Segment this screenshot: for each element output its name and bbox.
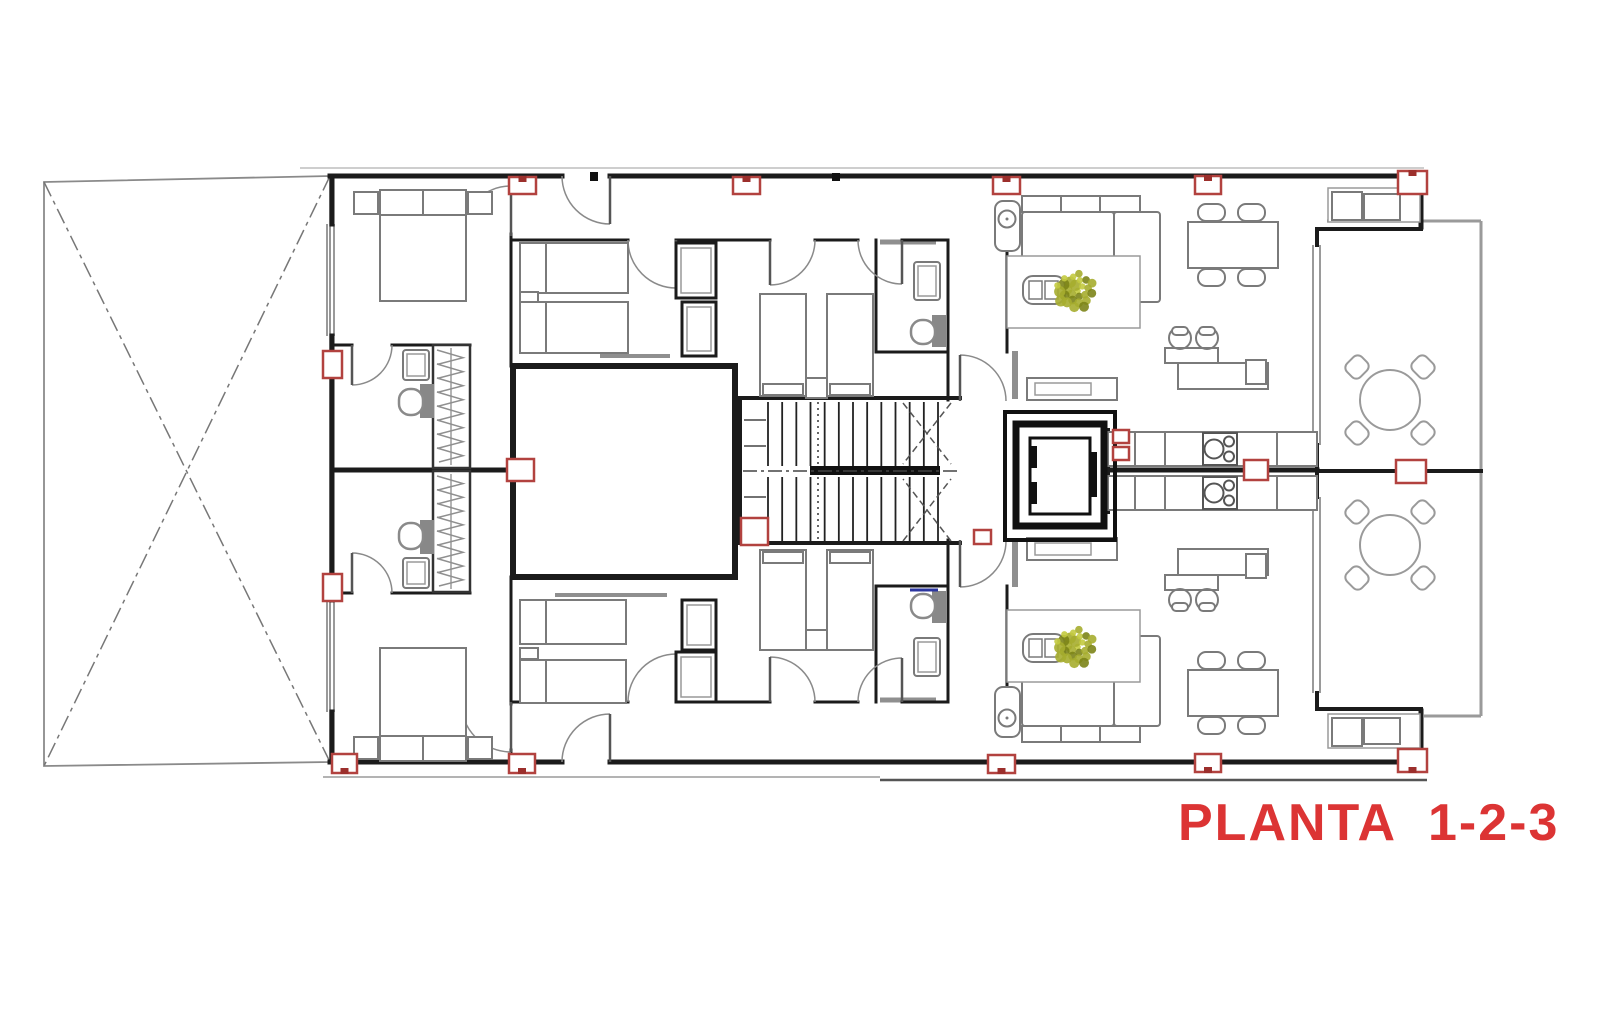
shape xyxy=(407,562,425,584)
column-box xyxy=(1244,460,1268,480)
shape xyxy=(911,594,935,618)
shape xyxy=(520,600,626,644)
shape xyxy=(687,307,711,351)
door xyxy=(858,240,902,284)
column-box xyxy=(323,351,342,378)
column-marker xyxy=(733,176,760,194)
closet xyxy=(682,302,716,356)
shape xyxy=(763,552,803,563)
column-notch xyxy=(1204,175,1212,181)
shape xyxy=(1364,194,1400,220)
twin-beds xyxy=(520,600,626,703)
terrace-chair xyxy=(1409,498,1437,526)
shape xyxy=(830,552,870,563)
elevator-frame xyxy=(1030,438,1090,514)
shape xyxy=(380,215,466,301)
shape xyxy=(1198,717,1225,734)
shape xyxy=(918,266,936,296)
leaf xyxy=(1061,275,1067,281)
shape xyxy=(760,550,806,650)
terrace-table xyxy=(1343,498,1437,592)
shape xyxy=(806,378,827,398)
leaf xyxy=(1055,651,1066,662)
elevator xyxy=(1005,412,1115,540)
shape xyxy=(1165,348,1218,363)
sideboard xyxy=(1328,714,1420,748)
wardrobe xyxy=(433,345,470,468)
closet xyxy=(676,243,716,298)
shape xyxy=(380,648,466,736)
column-marker xyxy=(1398,170,1427,194)
double-bed xyxy=(354,648,492,761)
door-arc xyxy=(628,654,676,702)
door-arc xyxy=(858,658,902,702)
shape xyxy=(1029,639,1042,657)
door-arc xyxy=(960,540,1006,587)
leaf xyxy=(1088,635,1097,644)
shape xyxy=(1165,575,1218,590)
door xyxy=(628,654,676,702)
floor-plan-sheet: PLANTA 1-2-3 xyxy=(0,0,1600,1024)
closet xyxy=(676,652,716,702)
wardrobe xyxy=(433,471,470,592)
shape xyxy=(1198,269,1225,286)
door xyxy=(960,540,1006,587)
column-marker xyxy=(741,518,768,545)
shape xyxy=(1246,554,1266,578)
column-notch xyxy=(998,768,1006,774)
shape xyxy=(1172,327,1188,335)
door xyxy=(352,345,392,385)
shape xyxy=(1029,281,1042,299)
column-box xyxy=(507,459,534,481)
shape xyxy=(1199,603,1215,611)
column-box xyxy=(1113,430,1129,443)
shape xyxy=(995,201,1020,251)
circle xyxy=(1006,218,1009,221)
column-notch xyxy=(1409,767,1417,773)
elevator-door-bar xyxy=(1030,482,1037,504)
shape xyxy=(354,192,378,214)
shape xyxy=(1364,718,1400,744)
bathroom-fixtures xyxy=(911,262,945,346)
shape xyxy=(1172,603,1188,611)
shape xyxy=(827,294,873,396)
terrace-chair xyxy=(1409,564,1437,592)
door xyxy=(858,658,902,702)
shape xyxy=(687,605,711,645)
twin-beds xyxy=(760,550,873,650)
door xyxy=(960,355,1006,401)
shape xyxy=(1199,327,1215,335)
door-arc xyxy=(562,176,610,224)
column-box xyxy=(1113,447,1129,460)
door xyxy=(628,240,676,288)
shape xyxy=(520,660,626,703)
shape xyxy=(681,657,711,697)
column-notch xyxy=(341,768,349,774)
column-marker xyxy=(974,530,991,544)
door-stop xyxy=(832,173,840,181)
door-stop xyxy=(590,172,598,181)
column-notch xyxy=(1409,170,1417,176)
shape xyxy=(399,389,423,415)
column-marker xyxy=(988,755,1015,774)
leaf xyxy=(1077,277,1083,283)
shape xyxy=(468,192,492,214)
leaf xyxy=(1079,658,1089,668)
island-desk xyxy=(1165,327,1268,389)
leaf xyxy=(1087,289,1096,298)
terrace-chair xyxy=(1343,419,1371,447)
shape xyxy=(760,294,806,396)
shape xyxy=(1332,192,1362,220)
leaf xyxy=(1061,631,1067,637)
leaf xyxy=(1055,295,1066,306)
door-arc xyxy=(352,345,392,385)
shape xyxy=(1238,717,1265,734)
column-marker xyxy=(1195,175,1221,194)
door-arc xyxy=(770,657,815,702)
shape xyxy=(918,642,936,672)
leaf xyxy=(1079,302,1089,312)
dining-table xyxy=(1188,652,1278,734)
column-notch xyxy=(519,176,527,182)
shape xyxy=(520,292,538,302)
circle xyxy=(1360,515,1420,575)
kitchen-counter xyxy=(1108,432,1317,466)
column-marker xyxy=(507,459,534,481)
shape xyxy=(399,523,423,549)
terrace-chair xyxy=(1409,353,1437,381)
column-notch xyxy=(518,768,526,774)
door-arc xyxy=(352,553,392,593)
shape xyxy=(1022,212,1114,260)
staircase xyxy=(743,402,957,541)
door xyxy=(562,714,610,762)
column-box xyxy=(1396,460,1426,483)
shape xyxy=(1198,204,1225,221)
shape xyxy=(468,737,492,759)
shape xyxy=(1246,360,1266,384)
column-box xyxy=(741,518,768,545)
door xyxy=(562,176,610,224)
leaf xyxy=(1077,633,1083,639)
terrace-chair xyxy=(1343,353,1371,381)
column-notch xyxy=(1003,176,1011,182)
door xyxy=(352,553,392,593)
column-box xyxy=(323,574,342,601)
column-marker xyxy=(1113,430,1129,443)
column-marker xyxy=(1113,447,1129,460)
floor-plan-drawing xyxy=(0,0,1600,1024)
shape xyxy=(1238,652,1265,669)
leaf xyxy=(1054,638,1060,644)
leaf xyxy=(1069,302,1079,312)
door-arc xyxy=(770,240,815,285)
shape xyxy=(1035,543,1091,555)
shape xyxy=(1238,269,1265,286)
terrace-chair xyxy=(1343,498,1371,526)
double-bed xyxy=(354,190,492,301)
column-notch xyxy=(1204,767,1212,773)
column-marker xyxy=(323,574,342,601)
shape xyxy=(1022,196,1140,212)
column-marker xyxy=(509,176,536,194)
door-arc xyxy=(858,240,902,284)
bathroom-fixtures xyxy=(399,350,433,417)
shape xyxy=(1188,222,1278,268)
floor-lamp xyxy=(995,687,1020,737)
terrace-chair xyxy=(1343,564,1371,592)
shape xyxy=(1332,718,1362,746)
terrace-chair xyxy=(1409,419,1437,447)
twin-beds xyxy=(760,294,873,398)
shape xyxy=(1035,383,1091,395)
shape xyxy=(520,243,628,293)
door xyxy=(770,657,815,702)
terrace-table xyxy=(1343,353,1437,447)
shape xyxy=(827,550,873,650)
closet xyxy=(682,600,716,650)
door xyxy=(770,240,815,285)
shape xyxy=(1022,726,1140,742)
leaf xyxy=(1075,270,1083,278)
column-notch xyxy=(743,176,751,182)
bathroom-fixtures xyxy=(910,590,945,676)
column-marker xyxy=(1244,460,1268,480)
shape xyxy=(1198,652,1225,669)
dining-table xyxy=(1188,204,1278,286)
patio-diagonal xyxy=(44,182,330,762)
shape xyxy=(520,302,628,353)
door-arc xyxy=(628,240,676,288)
shape xyxy=(1022,678,1114,726)
leaf xyxy=(1069,658,1079,668)
column-marker xyxy=(323,351,342,378)
kitchen-counter xyxy=(1108,476,1317,510)
shape xyxy=(681,248,711,293)
shape xyxy=(911,320,935,344)
column-marker xyxy=(509,754,535,774)
column-box xyxy=(974,530,991,544)
elevator-door-bar xyxy=(1091,452,1097,497)
shape xyxy=(520,648,538,659)
column-marker xyxy=(1195,754,1221,773)
floor-lamp xyxy=(995,201,1020,251)
door-arc xyxy=(562,714,610,762)
column-marker xyxy=(332,754,357,774)
shape xyxy=(995,687,1020,737)
plan-title: PLANTA 1-2-3 xyxy=(1178,797,1559,849)
patio-area xyxy=(44,176,330,766)
circle xyxy=(1006,717,1009,720)
column-marker xyxy=(993,176,1020,194)
shape xyxy=(1188,670,1278,716)
shape xyxy=(806,630,827,650)
shape xyxy=(763,384,803,395)
circle xyxy=(1360,370,1420,430)
leaf xyxy=(1088,279,1097,288)
elevator-door-bar xyxy=(1030,446,1037,468)
bathroom-fixtures xyxy=(399,521,433,588)
column-marker xyxy=(1398,749,1427,773)
shape xyxy=(830,384,870,395)
island-desk xyxy=(1165,549,1268,611)
elevator-frame xyxy=(1005,412,1115,540)
leaf xyxy=(1075,626,1083,634)
lightwell xyxy=(513,366,735,577)
twin-beds xyxy=(520,243,628,353)
shape xyxy=(513,366,735,577)
leaf xyxy=(1087,645,1096,654)
door-arc xyxy=(960,355,1006,401)
column-marker xyxy=(1396,460,1426,483)
shape xyxy=(1238,204,1265,221)
tv-cabinet xyxy=(1027,378,1117,400)
leaf xyxy=(1054,282,1060,288)
shape xyxy=(407,354,425,376)
